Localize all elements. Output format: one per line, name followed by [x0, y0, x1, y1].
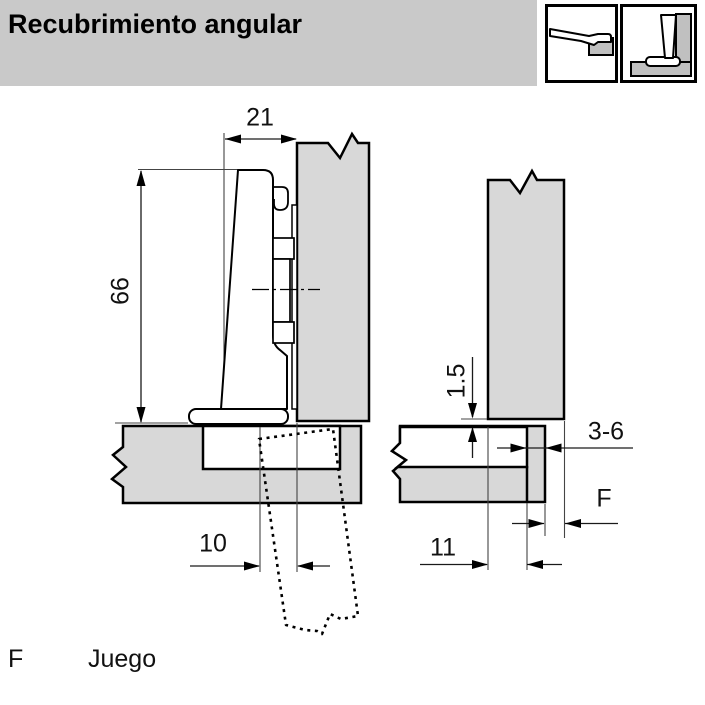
technical-drawing [0, 0, 705, 705]
clip-hook [273, 187, 288, 210]
dim-label-11: 11 [430, 534, 456, 563]
legend-symbol: F [8, 645, 23, 674]
dimension-21 [225, 135, 297, 144]
page: Recubrimiento angular [0, 0, 705, 705]
panel-recess [203, 426, 340, 469]
dim-label-21: 21 [246, 104, 274, 133]
mounting-plate-body [273, 259, 290, 322]
panel-recess [392, 427, 527, 467]
door-panel [488, 171, 564, 419]
legend-meaning: Juego [88, 645, 156, 674]
dimension-66 [137, 170, 146, 423]
left-view [112, 133, 369, 634]
mounting-plate-step [273, 238, 294, 259]
dim-label-1-5: 1.5 [443, 364, 472, 399]
mounting-plate-step [273, 322, 294, 343]
dim-label-66: 66 [107, 277, 136, 305]
side-panel [297, 134, 369, 421]
hinge-cup-flange [189, 409, 288, 424]
dim-label-3-6: 3-6 [588, 418, 624, 447]
dim-label-F: F [596, 485, 611, 514]
mounting-plate-base [292, 205, 297, 409]
dim-label-10: 10 [199, 530, 227, 559]
